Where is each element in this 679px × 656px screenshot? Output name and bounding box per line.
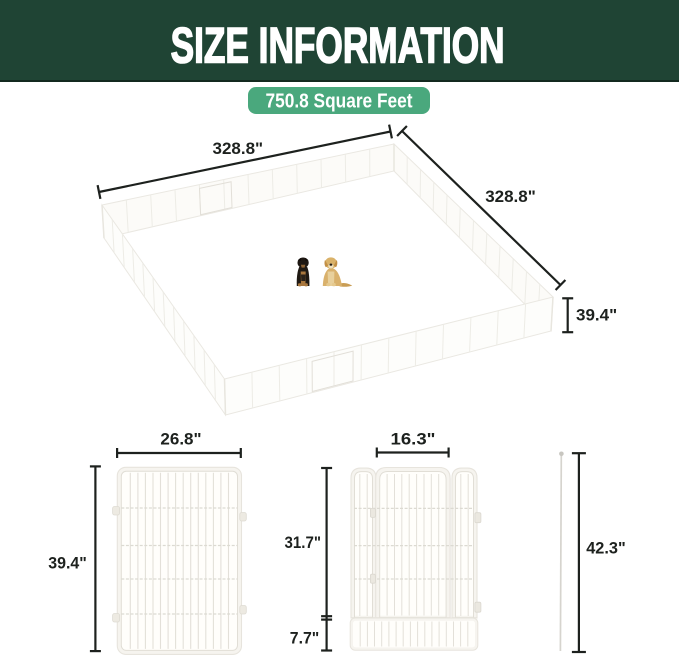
svg-text:750.8 Square Feet: 750.8 Square Feet [266, 91, 413, 113]
svg-text:7.7": 7.7" [290, 629, 320, 648]
svg-text:16.3": 16.3" [391, 430, 436, 449]
svg-text:31.7": 31.7" [285, 533, 322, 552]
svg-text:328.8": 328.8" [485, 187, 536, 206]
svg-text:26.8": 26.8" [160, 430, 201, 449]
svg-text:39.4": 39.4" [48, 554, 87, 573]
svg-text:39.4": 39.4" [576, 306, 617, 325]
svg-text:42.3": 42.3" [586, 539, 626, 558]
svg-text:SIZE INFORMATION: SIZE INFORMATION [171, 18, 505, 74]
svg-text:328.8": 328.8" [212, 139, 263, 158]
